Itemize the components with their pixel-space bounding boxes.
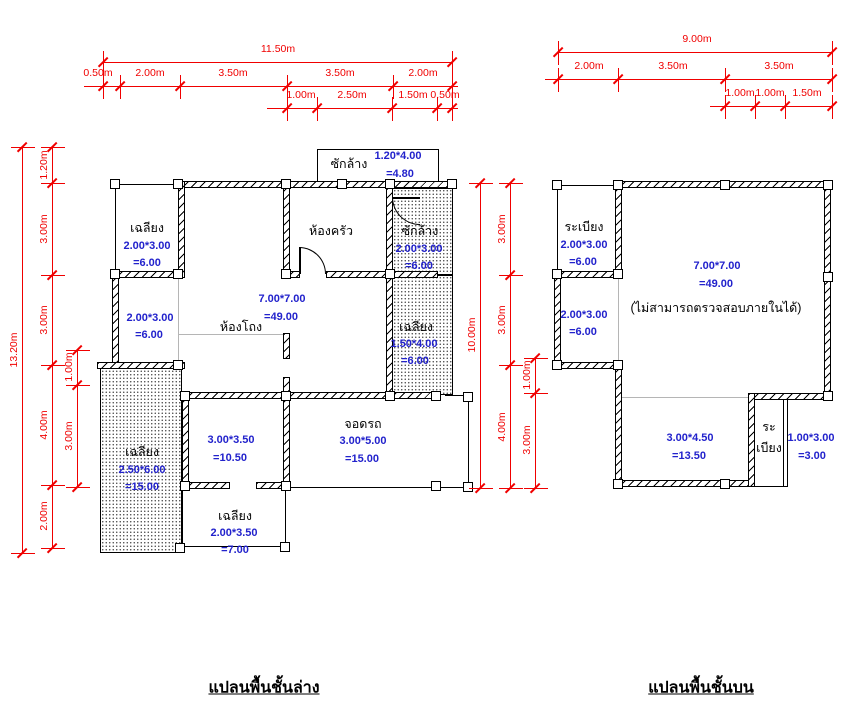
wall — [97, 362, 185, 369]
dimension-extension — [66, 385, 90, 386]
dimension-line — [103, 62, 452, 63]
column — [552, 269, 562, 279]
wall-line — [182, 489, 183, 547]
column — [613, 479, 623, 489]
wall — [554, 271, 622, 278]
dimension-extension — [469, 488, 493, 489]
column — [463, 392, 473, 402]
dimension-label: 2.00m — [408, 67, 437, 79]
column — [173, 360, 183, 370]
dimension-extension — [524, 488, 548, 489]
room-area-value: 3.00*5.00 — [339, 435, 386, 447]
wall-line — [557, 185, 558, 275]
room-area-value: 1.50*4.00 — [390, 338, 437, 350]
room-area-value: 1.00*3.00 — [787, 432, 834, 444]
dimension-label: 0.50m — [83, 67, 112, 79]
room-area-value: =10.50 — [213, 452, 247, 464]
column — [281, 391, 291, 401]
dimension-extension — [832, 68, 833, 92]
dimension-extension — [452, 51, 453, 75]
dimension-extension — [180, 75, 181, 99]
room-label: จอดรถ — [344, 414, 381, 434]
dimension-extension — [392, 97, 393, 121]
room-label: ห้องโถง — [220, 317, 262, 337]
room-label: ระ — [762, 417, 775, 437]
dimension-line — [84, 86, 458, 87]
dimension-label: 3.00m — [63, 421, 75, 450]
room-label: ซักล้าง — [331, 154, 368, 174]
dimension-extension — [11, 553, 35, 554]
room-area-value: 7.00*7.00 — [258, 293, 305, 305]
dimension-line — [22, 147, 23, 553]
column — [823, 391, 833, 401]
dimension-label: 3.50m — [764, 60, 793, 72]
wall — [748, 393, 830, 400]
column — [823, 272, 833, 282]
column — [552, 180, 562, 190]
dimension-extension — [558, 68, 559, 92]
column — [385, 269, 395, 279]
column — [552, 360, 562, 370]
dimension-label: 1.00m — [63, 352, 75, 381]
dimension-label: 9.00m — [682, 33, 711, 45]
room-boundary-line — [618, 278, 619, 365]
column — [180, 391, 190, 401]
room-area-value: =15.00 — [345, 453, 379, 465]
dimension-extension — [499, 488, 523, 489]
room-area-value: 2.00*3.00 — [126, 312, 173, 324]
room-area-value: 3.00*3.50 — [207, 434, 254, 446]
dimension-label: 3.00m — [38, 305, 50, 334]
wall-line — [115, 184, 181, 185]
room-label: ห้องครัว — [309, 221, 353, 241]
room-area-value: =49.00 — [264, 311, 298, 323]
wall — [615, 362, 622, 487]
dimension-line — [480, 183, 481, 488]
room-label: ระเบียง — [564, 217, 603, 237]
dimension-label: 0.50m — [430, 89, 459, 101]
wall-line — [115, 184, 116, 274]
dimension-extension — [832, 41, 833, 65]
dimension-extension — [66, 350, 90, 351]
dimension-label: 1.50m — [792, 87, 821, 99]
dimension-extension — [120, 75, 121, 99]
wall — [326, 271, 438, 278]
wall-line — [438, 149, 439, 185]
column — [720, 180, 730, 190]
dimension-line — [558, 52, 832, 53]
column — [823, 180, 833, 190]
column — [385, 391, 395, 401]
dimension-label: 3.50m — [325, 67, 354, 79]
wall — [283, 333, 290, 359]
dimension-label: 3.50m — [658, 60, 687, 72]
dimension-label: 4.00m — [496, 412, 508, 441]
dimension-extension — [499, 275, 523, 276]
wall-line — [317, 149, 318, 185]
dimension-extension — [41, 485, 65, 486]
room-area-value: =6.00 — [401, 355, 429, 367]
wall — [112, 271, 119, 369]
room-area-value: =4.80 — [386, 168, 414, 180]
room-label: (ไม่สามารถตรวจสอบภายในได้) — [631, 298, 802, 318]
wall-line — [557, 185, 618, 186]
wall — [615, 480, 755, 487]
ground-floor-title: แปลนพื้นชั้นล่าง — [208, 676, 319, 701]
wall-line — [468, 397, 469, 487]
room-area-value: 2.50*6.00 — [118, 464, 165, 476]
column — [280, 542, 290, 552]
room-area-value: 2.00*3.50 — [210, 527, 257, 539]
wall-line — [783, 398, 784, 487]
dimension-extension — [66, 487, 90, 488]
column — [281, 179, 291, 189]
column — [110, 179, 120, 189]
room-area-value: =6.00 — [133, 257, 161, 269]
wall — [283, 181, 290, 278]
column — [463, 482, 473, 492]
room-area-value: =49.00 — [699, 278, 733, 290]
dimension-extension — [41, 548, 65, 549]
wall-line — [285, 487, 469, 488]
column — [431, 391, 441, 401]
dimension-extension — [785, 95, 786, 119]
dimension-label: 3.00m — [521, 425, 533, 454]
wall — [178, 181, 452, 188]
dimension-extension — [499, 365, 523, 366]
dimension-extension — [499, 183, 523, 184]
dimension-extension — [469, 183, 493, 184]
dimension-label: 3.00m — [496, 214, 508, 243]
column — [281, 481, 291, 491]
dimension-line — [77, 350, 78, 487]
wall — [386, 188, 393, 399]
dimension-label: 13.20m — [8, 332, 20, 367]
dimension-extension — [393, 75, 394, 99]
room-area-value: 2.00*3.00 — [395, 243, 442, 255]
room-area-value: =6.00 — [135, 329, 163, 341]
column — [110, 269, 120, 279]
drawing-layer: 11.50m0.50m2.00m3.50m3.50m2.00m1.00m2.50… — [0, 0, 855, 709]
dimension-label: 3.00m — [38, 214, 50, 243]
column — [175, 543, 185, 553]
door-arc — [299, 247, 326, 274]
room-label: เฉลียง — [130, 218, 164, 238]
room-area-value: =3.00 — [798, 450, 826, 462]
column — [281, 269, 291, 279]
room-boundary-line — [178, 278, 179, 368]
wall — [182, 392, 438, 399]
dimension-label: 2.00m — [135, 67, 164, 79]
dimension-line — [267, 108, 458, 109]
room-area-value: 7.00*7.00 — [693, 260, 740, 272]
dimension-line — [510, 183, 511, 488]
wall-line — [285, 489, 286, 547]
wall — [283, 392, 290, 489]
dimension-label: 2.00m — [574, 60, 603, 72]
room-label: เฉลียง — [218, 506, 252, 526]
floor-plan-canvas: 11.50m0.50m2.00m3.50m3.50m2.00m1.00m2.50… — [0, 0, 855, 709]
dimension-label: 1.00m — [755, 87, 784, 99]
dimension-extension — [41, 147, 65, 148]
column — [337, 179, 347, 189]
column — [613, 269, 623, 279]
dimension-label: 1.00m — [521, 360, 533, 389]
dimension-label: 1.50m — [398, 89, 427, 101]
column — [431, 481, 441, 491]
column — [385, 179, 395, 189]
dimension-label: 2.50m — [337, 89, 366, 101]
room-area-value: =6.00 — [569, 256, 597, 268]
dimension-label: 11.50m — [261, 43, 295, 55]
room-area-value: =7.00 — [221, 544, 249, 556]
wall — [615, 181, 622, 278]
room-area-value: =6.00 — [569, 326, 597, 338]
dimension-label: 10.00m — [466, 317, 478, 352]
column — [613, 360, 623, 370]
dimension-line — [535, 358, 536, 488]
room-area-value: 2.00*3.00 — [123, 240, 170, 252]
dimension-extension — [524, 358, 548, 359]
dimension-extension — [618, 68, 619, 92]
dimension-label: 1.00m — [286, 89, 315, 101]
dimension-extension — [317, 97, 318, 121]
room-label: เฉลียง — [125, 442, 159, 462]
wall — [824, 181, 831, 400]
upper-floor-title: แปลนพื้นชั้นบน — [648, 676, 754, 701]
dimension-extension — [558, 41, 559, 65]
dimension-label: 3.50m — [218, 67, 247, 79]
column — [447, 179, 457, 189]
room-label: ซักล้าง — [402, 221, 439, 241]
room-area-value: =6.00 — [405, 260, 433, 272]
room-area-value: 1.20*4.00 — [374, 150, 421, 162]
dimension-extension — [41, 365, 65, 366]
dimension-extension — [832, 95, 833, 119]
room-area-value: 3.00*4.50 — [666, 432, 713, 444]
wall — [554, 362, 622, 369]
room-area-value: =15.00 — [125, 481, 159, 493]
column — [180, 481, 190, 491]
dimension-extension — [524, 393, 548, 394]
column — [720, 479, 730, 489]
room-area-value: 2.00*3.00 — [560, 309, 607, 321]
dimension-line — [710, 106, 832, 107]
dimension-label: 1.20m — [38, 150, 50, 179]
dimension-label: 1.00m — [725, 87, 754, 99]
dimension-extension — [41, 275, 65, 276]
room-area-value: =13.50 — [672, 450, 706, 462]
room-boundary-line — [618, 397, 749, 398]
dimension-label: 4.00m — [38, 410, 50, 439]
room-label: เฉลียง — [399, 317, 433, 337]
dimension-line — [545, 79, 832, 80]
column — [173, 269, 183, 279]
wall — [748, 393, 755, 487]
column — [173, 179, 183, 189]
dimension-extension — [11, 147, 35, 148]
wall — [182, 392, 189, 489]
dimension-label: 2.00m — [38, 501, 50, 530]
room-label: เบียง — [756, 438, 782, 458]
dimension-label: 3.00m — [496, 305, 508, 334]
dimension-line — [52, 147, 53, 548]
room-area-value: 2.00*3.00 — [560, 239, 607, 251]
wall — [178, 181, 185, 278]
column — [613, 180, 623, 190]
dimension-extension — [41, 183, 65, 184]
